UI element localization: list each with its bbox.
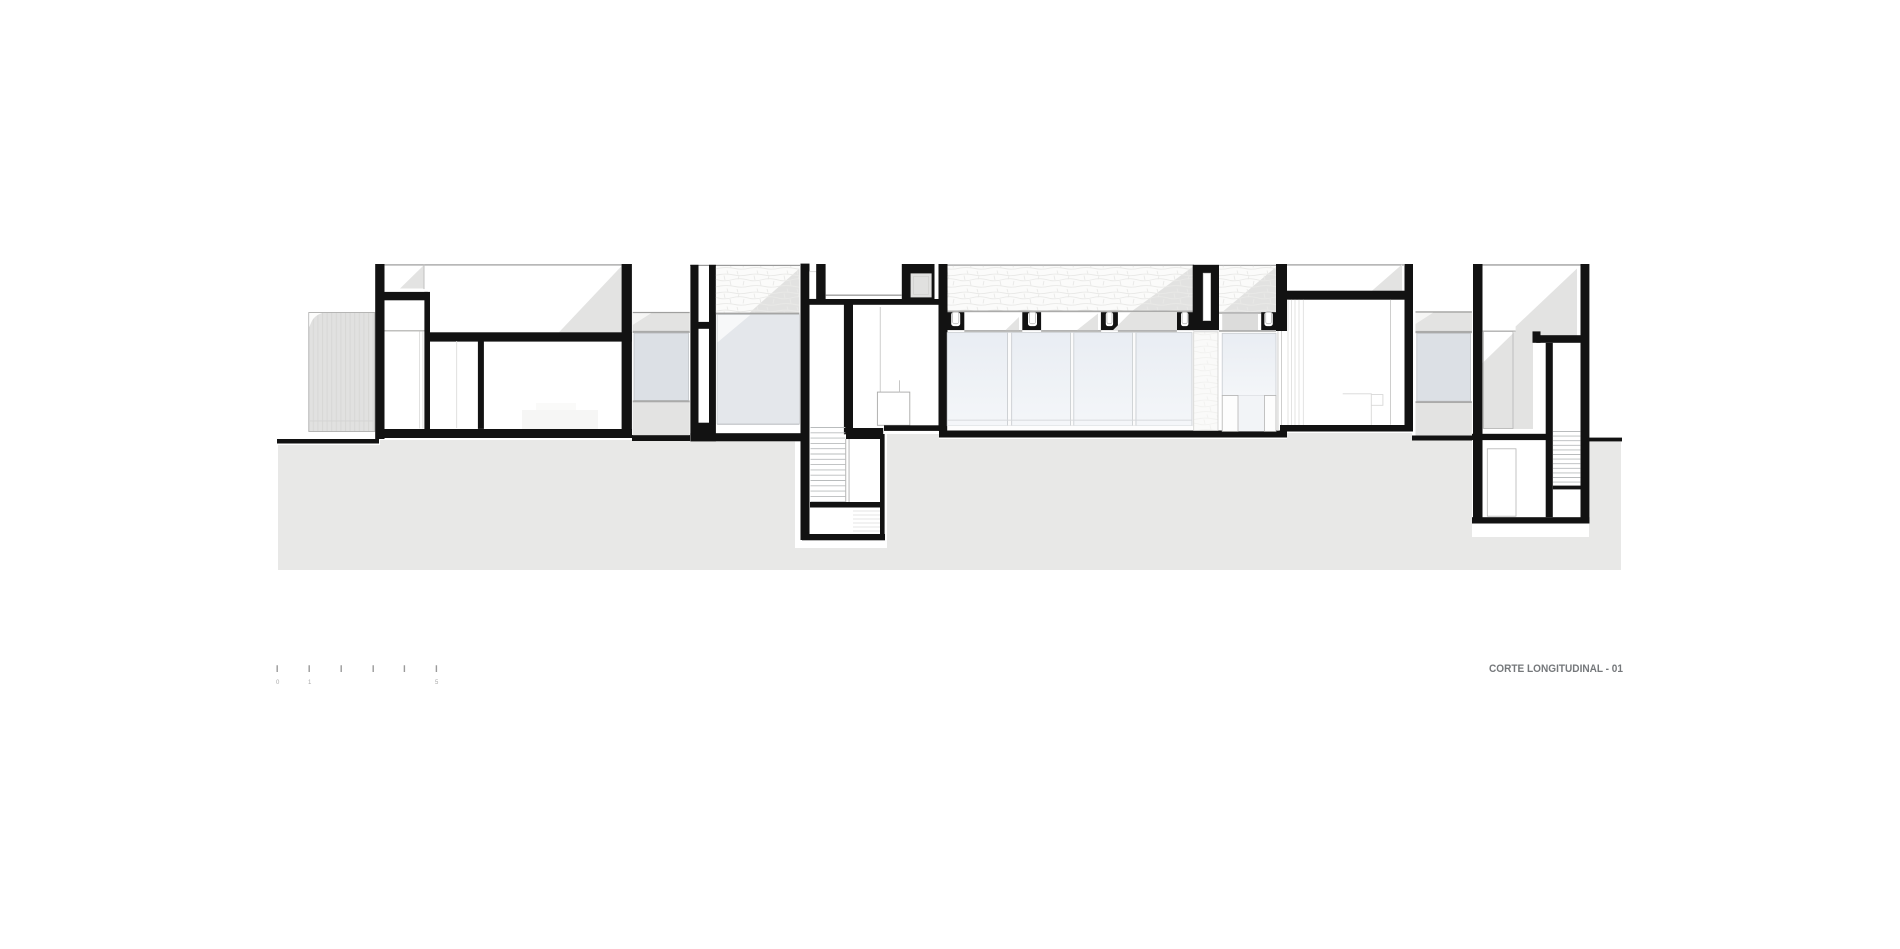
svg-text:CORTE LONGITUDINAL - 01: CORTE LONGITUDINAL - 01 [1489, 663, 1623, 675]
